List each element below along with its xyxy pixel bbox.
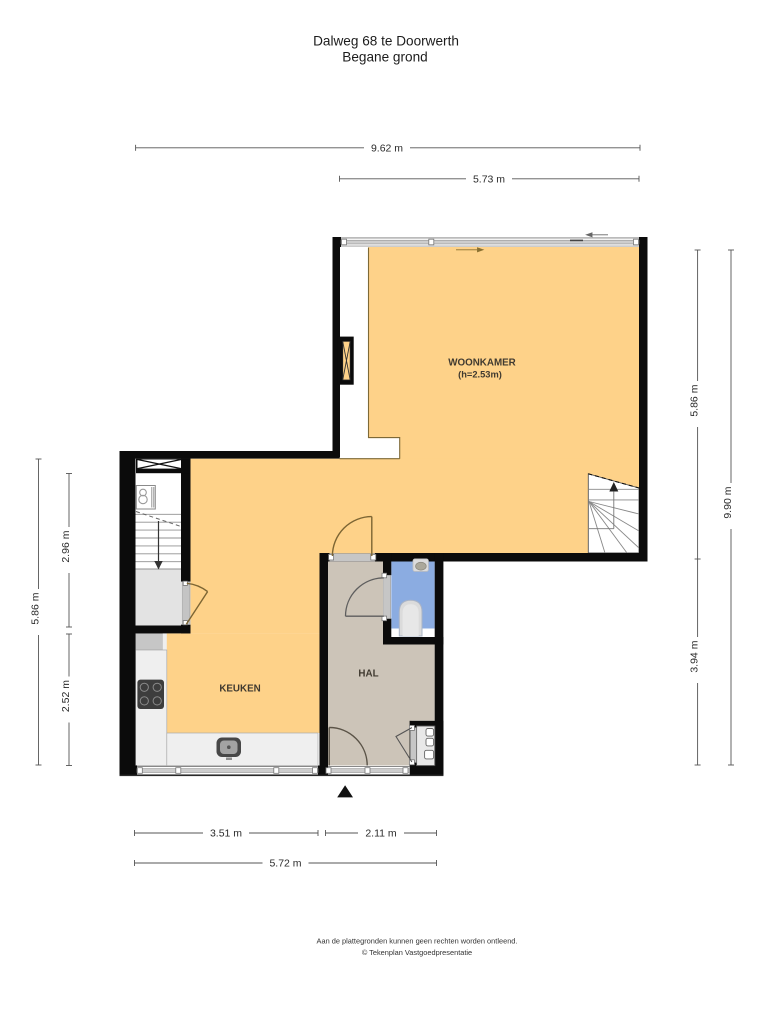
svg-text:HAL: HAL: [358, 669, 378, 680]
svg-text:5.73 m: 5.73 m: [473, 173, 505, 185]
svg-text:(h=2.53m): (h=2.53m): [458, 370, 502, 380]
svg-text:5.86 m: 5.86 m: [689, 384, 701, 416]
svg-text:5.86 m: 5.86 m: [30, 592, 42, 624]
svg-text:© Tekenplan Vastgoedpresentati: © Tekenplan Vastgoedpresentatie: [362, 948, 472, 957]
svg-text:3.94 m: 3.94 m: [689, 640, 701, 672]
svg-text:2.96 m: 2.96 m: [60, 530, 72, 562]
svg-text:9.62 m: 9.62 m: [371, 142, 403, 154]
svg-text:KEUKEN: KEUKEN: [219, 684, 260, 695]
svg-text:2.11 m: 2.11 m: [365, 828, 397, 840]
svg-text:Begane grond: Begane grond: [342, 50, 427, 65]
svg-text:3.51 m: 3.51 m: [210, 828, 242, 840]
svg-text:2.52 m: 2.52 m: [60, 680, 72, 712]
svg-text:9.90 m: 9.90 m: [722, 486, 734, 518]
svg-text:WOONKAMER: WOONKAMER: [448, 358, 515, 369]
svg-text:Dalweg 68 te Doorwerth: Dalweg 68 te Doorwerth: [313, 34, 459, 49]
svg-text:Aan de plattegronden kunnen ge: Aan de plattegronden kunnen geen rechten…: [317, 937, 518, 946]
svg-text:5.72 m: 5.72 m: [269, 858, 301, 870]
